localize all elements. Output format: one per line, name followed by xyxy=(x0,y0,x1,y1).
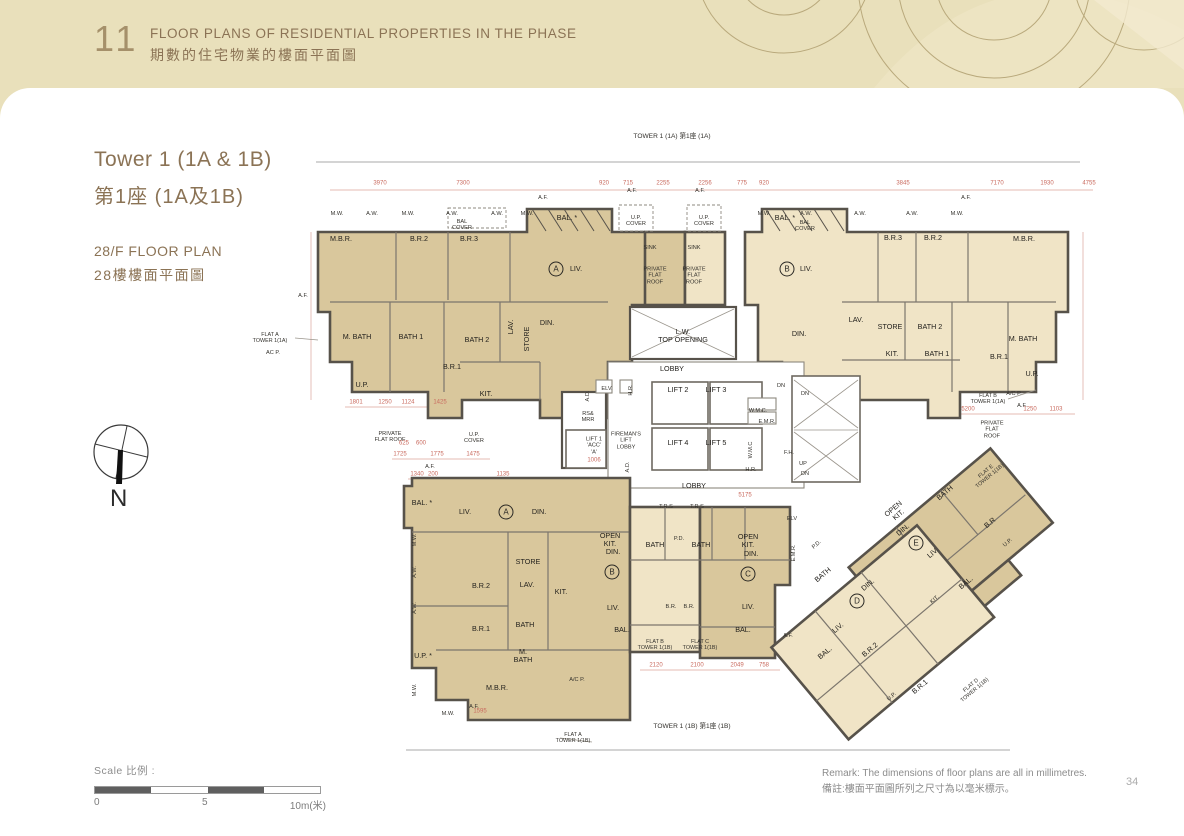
floor-plan-drawing xyxy=(0,0,1184,836)
brochure-page: 11 FLOOR PLANS OF RESIDENTIAL PROPERTIES… xyxy=(0,0,1184,836)
tower-1a-bracket-label: TOWER 1 (1A) 第1座 (1A) xyxy=(633,132,710,142)
tower-1b-bracket-label: TOWER 1 (1B) 第1座 (1B) xyxy=(653,722,730,732)
